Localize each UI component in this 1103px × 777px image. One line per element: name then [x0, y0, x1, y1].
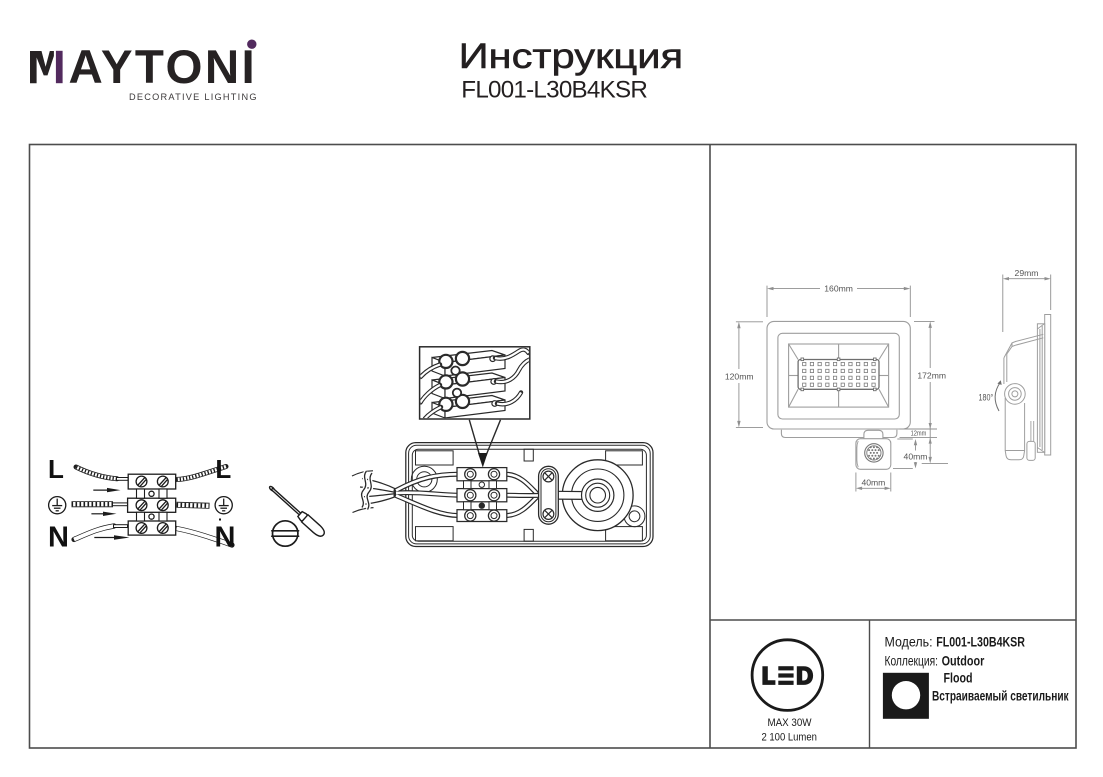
svg-text:Коллекция:: Коллекция:: [885, 652, 939, 668]
svg-text:FL001-L30B4KSR: FL001-L30B4KSR: [461, 76, 647, 103]
svg-text:AYTONI: AYTONI: [69, 41, 258, 94]
svg-text:N: N: [48, 521, 69, 553]
svg-text:DECORATIVE LIGHTING: DECORATIVE LIGHTING: [129, 92, 258, 102]
svg-text:Flood: Flood: [944, 671, 973, 687]
svg-text:FL001-L30B4KSR: FL001-L30B4KSR: [936, 635, 1025, 651]
svg-text:Встраиваемый светильник: Встраиваемый светильник: [932, 688, 1069, 704]
svg-text:40mm: 40mm: [861, 477, 885, 487]
svg-text:180°: 180°: [979, 392, 994, 402]
svg-text:120mm: 120mm: [725, 371, 754, 381]
svg-text:L: L: [215, 454, 231, 484]
svg-text:Инструкция: Инструкция: [459, 36, 683, 76]
svg-text:40mm: 40mm: [904, 451, 928, 461]
svg-text:172mm: 172mm: [917, 370, 946, 380]
svg-text:MAX 30W: MAX 30W: [767, 717, 812, 729]
svg-text:L: L: [48, 454, 64, 484]
svg-text:N: N: [215, 521, 236, 553]
svg-text:29mm: 29mm: [1015, 268, 1039, 278]
svg-text:2 100 Lumen: 2 100 Lumen: [761, 732, 817, 744]
svg-text:Outdoor: Outdoor: [942, 653, 985, 669]
svg-text:12mm: 12mm: [911, 429, 927, 438]
svg-text:Модель:: Модель:: [885, 634, 933, 650]
svg-text:160mm: 160mm: [824, 284, 853, 294]
